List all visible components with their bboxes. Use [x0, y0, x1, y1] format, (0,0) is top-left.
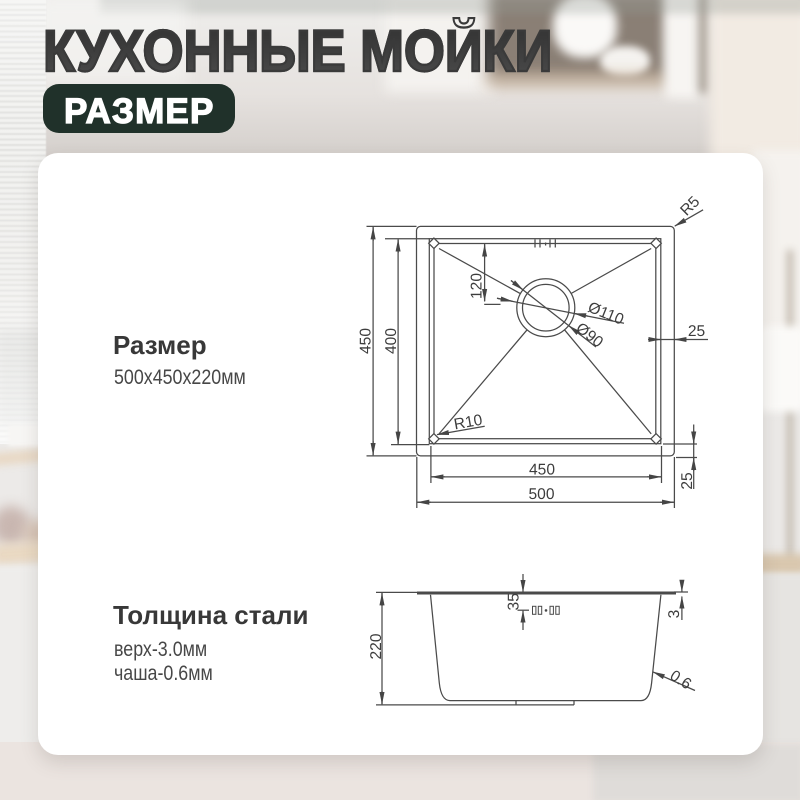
svg-text:3: 3	[666, 610, 683, 619]
svg-text:450: 450	[358, 328, 375, 354]
svg-text:500: 500	[528, 486, 554, 503]
svg-text:Ø90: Ø90	[572, 320, 606, 352]
svg-text:120: 120	[469, 273, 486, 299]
svg-text:25: 25	[679, 472, 696, 490]
svg-text:0.6: 0.6	[667, 667, 694, 693]
svg-text:220: 220	[368, 633, 385, 659]
svg-text:R10: R10	[453, 412, 484, 434]
svg-text:35: 35	[506, 593, 523, 611]
svg-text:450: 450	[529, 462, 555, 479]
svg-text:25: 25	[688, 323, 706, 340]
svg-text:400: 400	[383, 328, 400, 354]
svg-text:Ø110: Ø110	[585, 299, 626, 329]
svg-text:R5: R5	[677, 193, 703, 219]
